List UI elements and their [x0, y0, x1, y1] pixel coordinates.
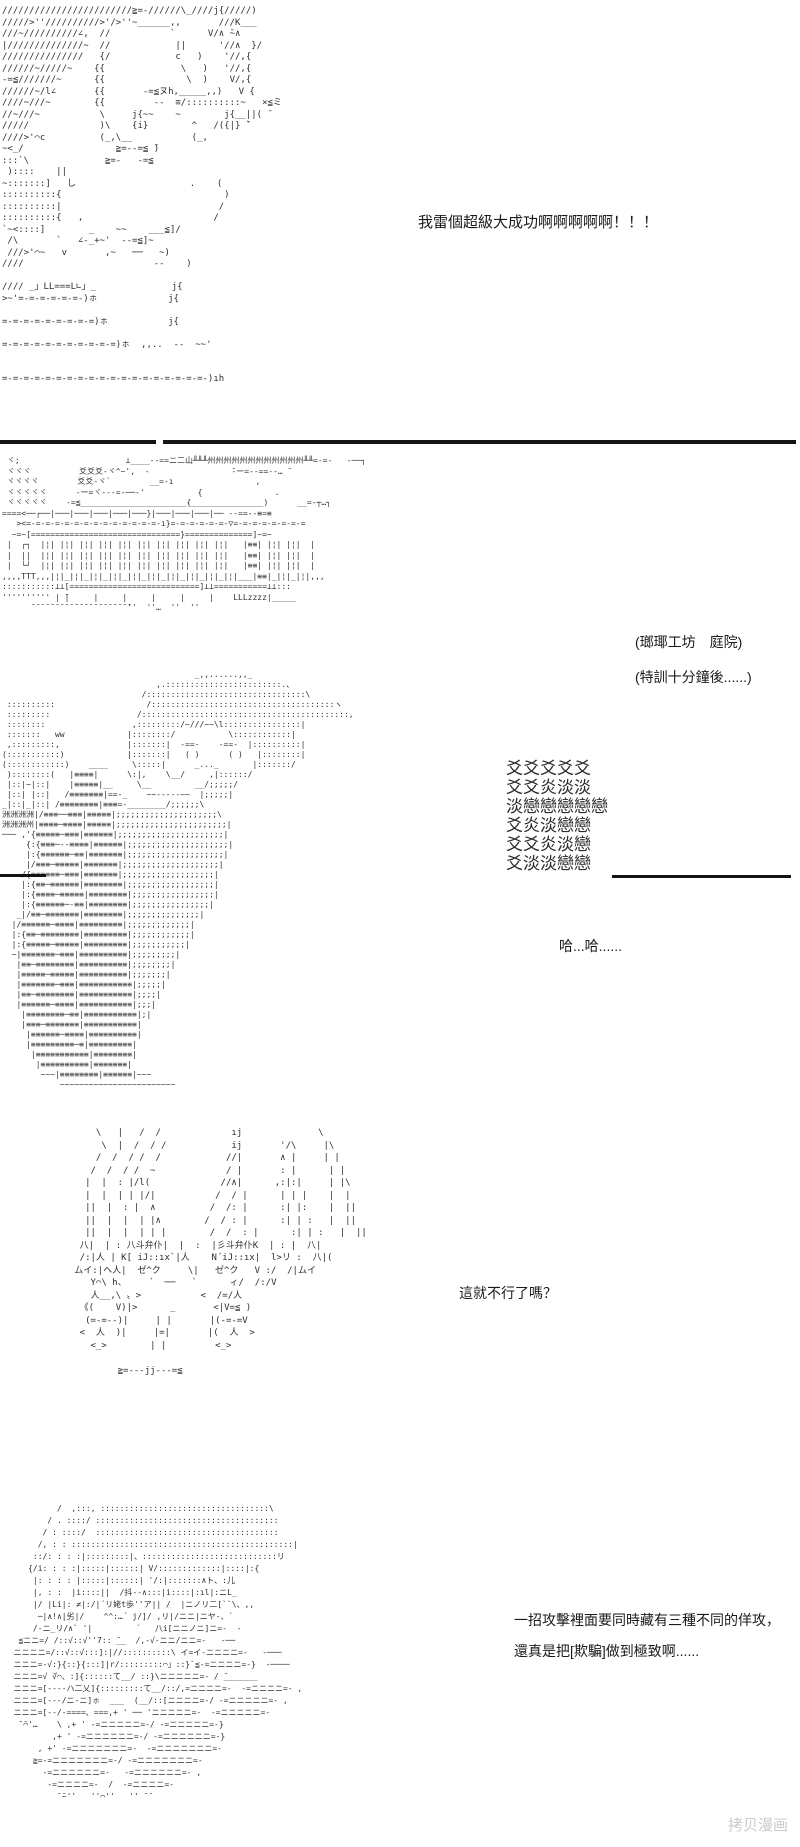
panel-divider-mid-left — [0, 874, 46, 877]
ascii-art-training-panel: _,,......,,_ ,.::::::::::::::::::::::::.… — [2, 670, 354, 1090]
ascii-art-effect-marks: 爻爻爻爻爻 爻爻炎淡淡 淡戀戀戀戀戀 爻炎淡戀戀 爻爻炎淡戀 爻淡淡戀戀 — [506, 760, 608, 874]
watermark-label: 拷贝漫画 — [728, 1814, 788, 1835]
monologue-line-2: 還真是把[欺騙]做到極致啊...... — [514, 1641, 699, 1661]
panel-divider-top-right — [163, 440, 796, 444]
scene-label-location: (瑯瑘工坊 庭院) — [635, 632, 742, 652]
dialogue-question: 這就不行了嗎？ — [459, 1283, 557, 1303]
dialogue-laugh: 哈...哈...... — [559, 936, 622, 956]
ascii-art-closeup-panel: / ,:::, ::::::::::::::::::::::::::::::::… — [4, 1503, 302, 1803]
scene-label-time: (特訓十分鐘後......) — [635, 667, 752, 687]
panel-divider-top-left — [0, 440, 156, 444]
monologue-line-1: 一招攻擊裡面要同時藏有三種不同的佯攻， — [514, 1610, 780, 1630]
ascii-art-celebration-panel: ////////////////////////≧=-//////\_////j… — [2, 6, 282, 386]
panel-divider-mid-right — [612, 875, 791, 878]
ascii-art-workshop-panel: ヾ; ⊥____--==ニ二山╨╨╨州州州州州州州州州州州州╨╨=-=- -──… — [2, 456, 366, 656]
dialogue-shout: 我雷個超級大成功啊啊啊啊啊！！！ — [418, 211, 658, 232]
ascii-art-face-panel: \ | / / ıj \ \ | / / / ij '/\ |\ / / / /… — [58, 1127, 367, 1377]
comic-page: { "page": { "background": "#ffffff", "ar… — [0, 0, 800, 1847]
